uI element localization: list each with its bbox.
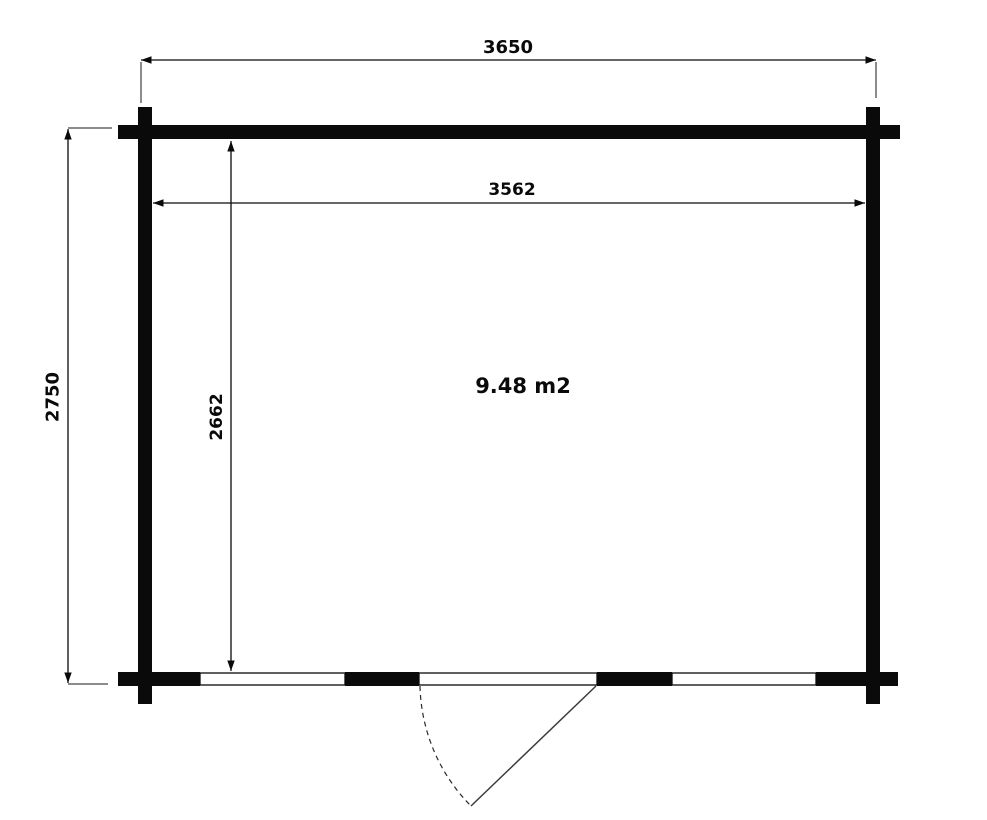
wall-right	[866, 107, 880, 704]
dim-label-inner-height: 2662	[207, 393, 227, 440]
door-opening	[419, 673, 597, 685]
wall-top	[118, 125, 900, 139]
dim-label-outer-width: 3650	[483, 37, 533, 58]
floor-plan: 3650 3562 2750 2662 9.48 m2	[0, 0, 987, 820]
dim-label-outer-height: 2750	[42, 372, 63, 422]
dim-label-inner-width: 3562	[488, 180, 535, 200]
window-2	[672, 673, 816, 685]
wall-bottom-segment-1	[118, 672, 200, 686]
door-leaf	[471, 686, 596, 806]
wall-bottom-segment-2	[345, 672, 419, 686]
window-1	[200, 673, 345, 685]
wall-bottom-segment-3	[597, 672, 672, 686]
wall-bottom-segment-4	[816, 672, 898, 686]
area-label: 9.48 m2	[475, 374, 571, 398]
wall-left	[138, 107, 152, 704]
door-swing-arc	[420, 686, 471, 806]
floor-plan-drawing: 3650 3562 2750 2662 9.48 m2	[0, 0, 987, 820]
